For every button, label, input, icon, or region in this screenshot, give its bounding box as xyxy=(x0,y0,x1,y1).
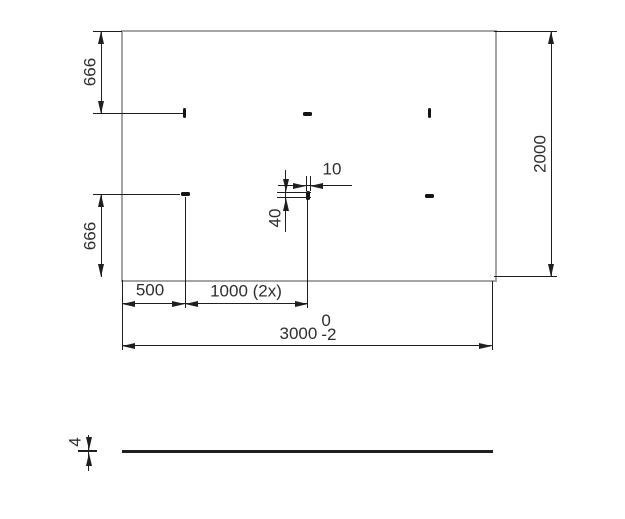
arrowhead-right xyxy=(172,301,185,307)
arrowhead-up xyxy=(98,31,104,44)
plate-outline xyxy=(121,30,497,282)
dim-3000-value: 3000 xyxy=(280,325,318,342)
arrowhead-left xyxy=(122,301,135,307)
dim-3000-line xyxy=(122,345,492,346)
arrowhead-up xyxy=(548,31,554,44)
arrowhead-up xyxy=(98,194,104,207)
dim-label-2000: 2000 xyxy=(532,135,549,173)
dim-label-4: 4 xyxy=(67,437,84,446)
extension-line xyxy=(185,197,186,308)
arrowhead-down xyxy=(548,264,554,277)
dim-label-40: 40 xyxy=(267,209,284,228)
dim-label-10: 10 xyxy=(323,161,342,178)
arrowhead-right xyxy=(479,343,492,349)
arrowhead-down xyxy=(283,179,289,192)
technical-drawing-canvas: 666 666 2000 500 1000 (2x) 3000 0 -2 10 xyxy=(0,0,625,519)
arrowhead-down xyxy=(86,437,92,450)
arrowhead-left xyxy=(310,183,323,189)
arrowhead-right xyxy=(295,301,308,307)
extension-line xyxy=(122,280,123,350)
slot-mark-top-left xyxy=(183,108,186,118)
extension-line xyxy=(492,281,493,350)
arrowhead-up xyxy=(86,453,92,466)
arrowhead-left xyxy=(122,343,135,349)
extension-line xyxy=(306,176,307,191)
dim-label-500: 500 xyxy=(136,282,164,299)
arrowhead-left xyxy=(185,301,198,307)
slot-mark-top-center xyxy=(303,112,312,116)
dim-label-666-top: 666 xyxy=(82,58,99,86)
dim-label-3000: 3000 0 -2 xyxy=(280,314,337,342)
dim-2000-line xyxy=(551,31,552,277)
slot-mark-top-right xyxy=(428,108,431,118)
dim-3000-tol-lower: -2 xyxy=(321,328,336,342)
arrowhead-down xyxy=(98,101,104,114)
extension-line xyxy=(307,200,308,308)
dim-500-1000-line xyxy=(122,303,308,304)
slot-mark-bottom-right xyxy=(425,194,434,198)
dim-label-666-bottom: 666 xyxy=(82,222,99,250)
extension-line xyxy=(93,113,183,114)
arrowhead-right xyxy=(293,183,306,189)
dim-label-1000-2x: 1000 (2x) xyxy=(210,283,282,300)
side-view-plate-edge xyxy=(122,450,493,453)
extension-line xyxy=(93,194,180,195)
extension-line xyxy=(277,192,311,193)
slot-mark-bottom-left xyxy=(181,192,190,196)
arrowhead-down xyxy=(98,264,104,277)
